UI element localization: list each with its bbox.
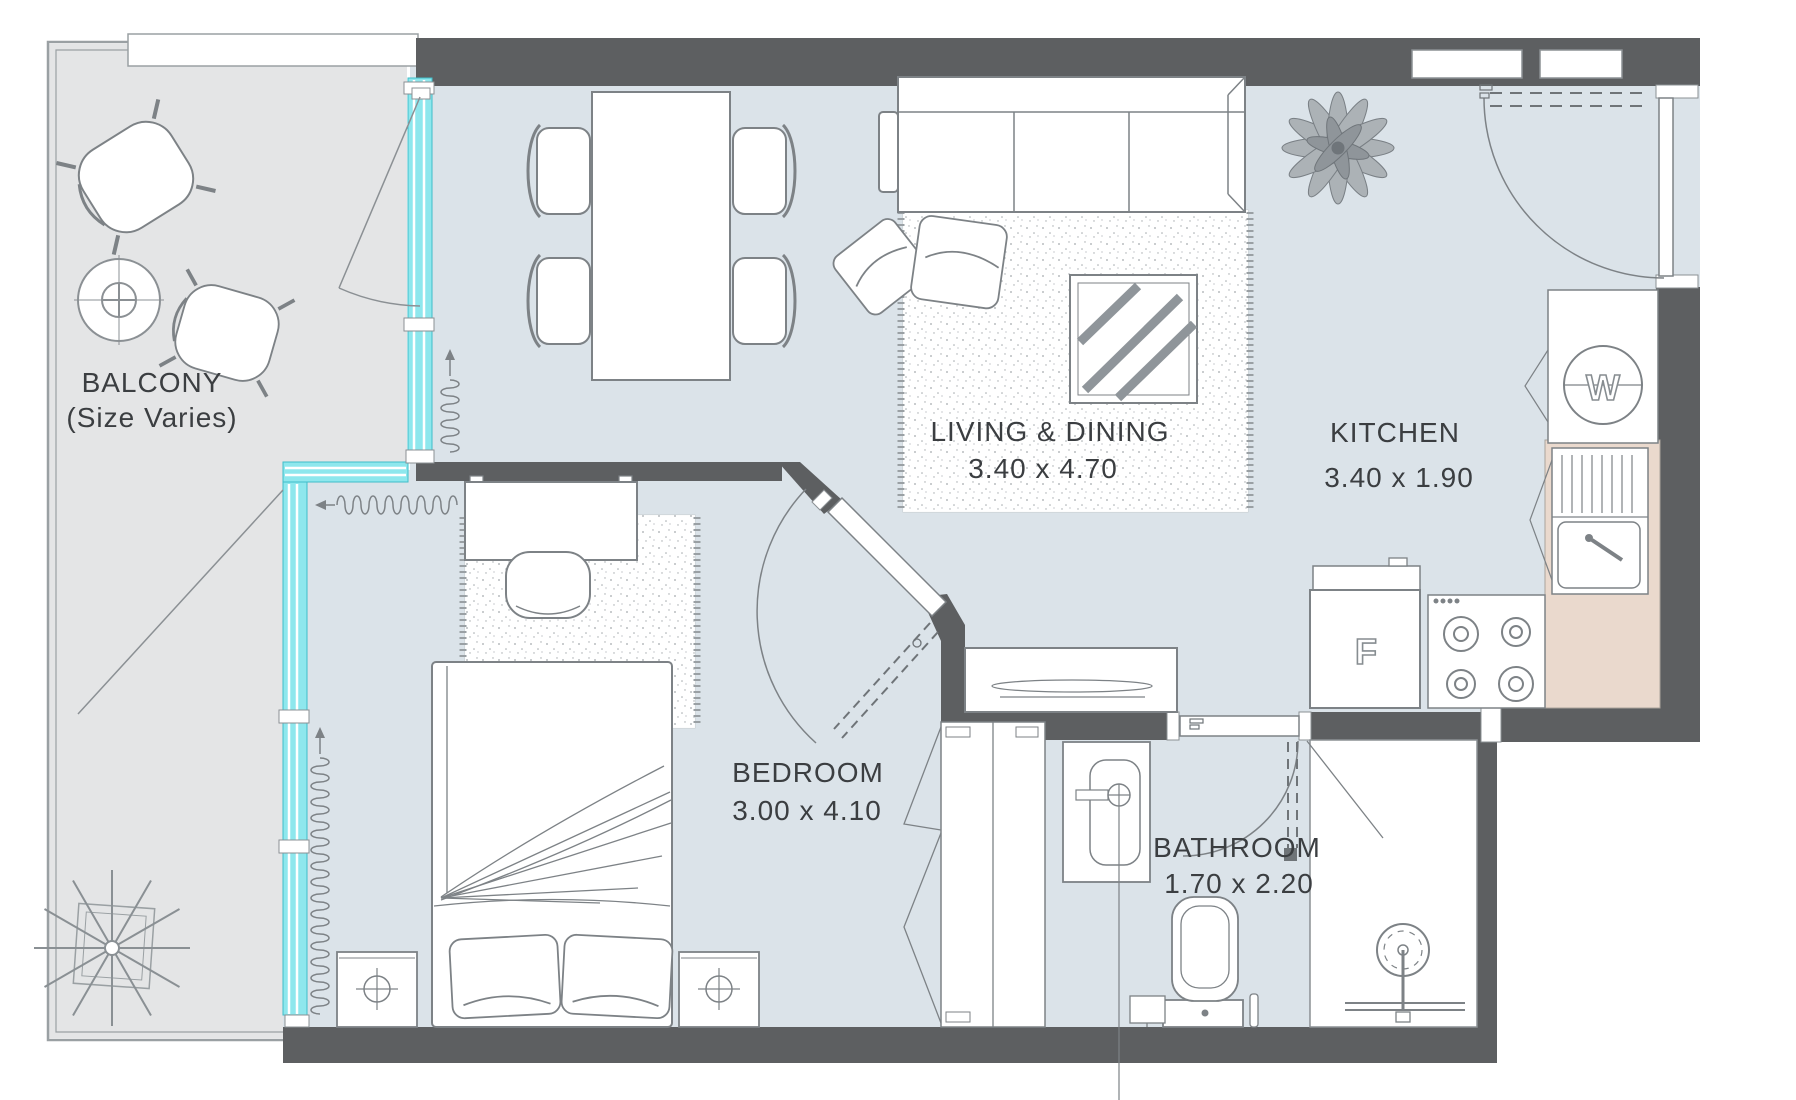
fridge: F bbox=[1310, 558, 1420, 708]
floorplan-page: W F bbox=[0, 0, 1796, 1100]
bottom-wall bbox=[283, 1027, 1497, 1063]
wardrobe bbox=[904, 722, 1045, 1027]
kitchen-label: KITCHEN bbox=[1330, 417, 1460, 448]
stove bbox=[1428, 595, 1545, 708]
bedroom-glass-wall-horizontal bbox=[283, 462, 408, 482]
washer-label: W bbox=[1586, 367, 1620, 408]
desk bbox=[465, 476, 637, 560]
bathroom-right-wall bbox=[1477, 740, 1497, 1027]
nightstand-right bbox=[679, 952, 759, 1027]
bathroom-accessory bbox=[1130, 996, 1165, 1023]
coffee-table bbox=[1070, 275, 1197, 403]
niche-left bbox=[1412, 50, 1522, 78]
nightstand-left bbox=[337, 952, 417, 1027]
niche-right bbox=[1540, 50, 1622, 78]
bathroom-top-wall-right bbox=[1311, 712, 1481, 740]
dining-chair bbox=[528, 255, 590, 347]
bedroom-dims: 3.00 x 4.10 bbox=[732, 795, 882, 826]
dining-chair bbox=[733, 125, 795, 217]
fridge-label: F bbox=[1355, 631, 1377, 672]
sofa bbox=[879, 77, 1245, 212]
kitchen-bottom-wall bbox=[1501, 705, 1700, 742]
living-label: LIVING & DINING bbox=[930, 416, 1169, 447]
dining-chair bbox=[733, 255, 795, 347]
right-wall bbox=[1656, 287, 1700, 707]
entry-door-leaf bbox=[1659, 98, 1673, 276]
living-dims: 3.40 x 4.70 bbox=[968, 453, 1118, 484]
toilet-brush bbox=[1250, 994, 1258, 1027]
upper-wall-strip bbox=[128, 34, 418, 66]
living-glass-wall bbox=[408, 78, 432, 452]
kitchen-dims: 3.40 x 1.90 bbox=[1324, 462, 1474, 493]
console-table bbox=[965, 648, 1177, 712]
bedroom-label: BEDROOM bbox=[732, 757, 884, 788]
desk-chair bbox=[506, 552, 590, 618]
balcony-note: (Size Varies) bbox=[66, 402, 237, 433]
dining-table bbox=[592, 92, 730, 380]
floorplan-drawing: W F bbox=[0, 0, 1796, 1100]
bedroom-glass-wall-vertical bbox=[283, 482, 307, 1015]
balcony-label: BALCONY bbox=[82, 367, 223, 398]
bathroom-label: BATHROOM bbox=[1153, 832, 1321, 863]
bed bbox=[432, 662, 673, 1027]
wall-niches bbox=[1412, 50, 1622, 78]
bathroom-dims: 1.70 x 2.20 bbox=[1164, 868, 1314, 899]
dining-chair bbox=[528, 125, 590, 217]
